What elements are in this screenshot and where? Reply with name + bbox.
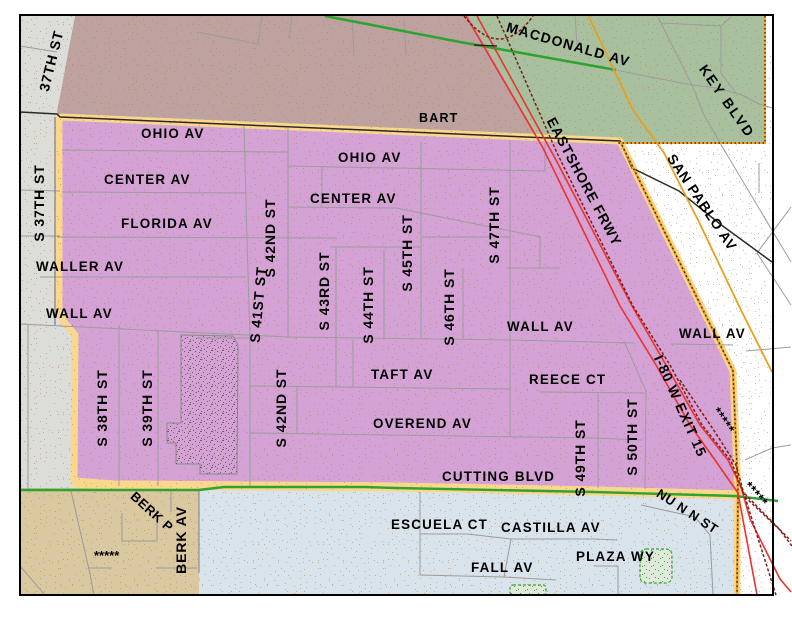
svg-text:OHIO AV: OHIO AV — [338, 150, 401, 165]
svg-text:CUTTING BLVD: CUTTING BLVD — [442, 469, 555, 484]
svg-text:S 42ND ST: S 42ND ST — [262, 199, 278, 278]
svg-text:S 42ND ST: S 42ND ST — [273, 369, 289, 448]
svg-text:WALL AV: WALL AV — [46, 306, 113, 321]
svg-text:S 39TH ST: S 39TH ST — [139, 369, 155, 446]
svg-text:REECE CT: REECE CT — [529, 372, 606, 387]
svg-text:ESCUELA CT: ESCUELA CT — [391, 517, 488, 532]
svg-text:BERK AV: BERK AV — [173, 506, 189, 574]
svg-text:S 49TH ST: S 49TH ST — [572, 419, 588, 496]
svg-text:S 46TH ST: S 46TH ST — [441, 268, 457, 345]
svg-text:S 45TH ST: S 45TH ST — [399, 214, 415, 291]
svg-text:CENTER AV: CENTER AV — [310, 191, 397, 206]
svg-text:OVEREND AV: OVEREND AV — [373, 416, 472, 431]
svg-text:S 50TH ST: S 50TH ST — [624, 398, 640, 475]
svg-text:OHIO AV: OHIO AV — [141, 126, 204, 141]
svg-text:CASTILLA AV: CASTILLA AV — [501, 520, 601, 535]
svg-text:BART: BART — [419, 111, 459, 125]
svg-text:*****: ***** — [94, 548, 120, 563]
svg-text:FLORIDA AV: FLORIDA AV — [121, 216, 213, 231]
svg-text:FALL AV: FALL AV — [471, 560, 533, 575]
svg-text:TAFT AV: TAFT AV — [371, 367, 433, 382]
svg-text:S 44TH ST: S 44TH ST — [360, 266, 376, 343]
svg-text:WALL AV: WALL AV — [679, 326, 746, 341]
svg-text:PLAZA WY: PLAZA WY — [576, 549, 655, 564]
svg-text:S 37TH ST: S 37TH ST — [31, 164, 47, 241]
svg-text:WALL AV: WALL AV — [507, 319, 574, 334]
svg-text:WALLER AV: WALLER AV — [36, 259, 124, 274]
svg-text:S 43RD ST: S 43RD ST — [316, 252, 332, 331]
svg-text:S 47TH ST: S 47TH ST — [486, 186, 502, 263]
svg-text:S 38TH ST: S 38TH ST — [94, 369, 110, 446]
svg-text:CENTER AV: CENTER AV — [104, 172, 191, 187]
